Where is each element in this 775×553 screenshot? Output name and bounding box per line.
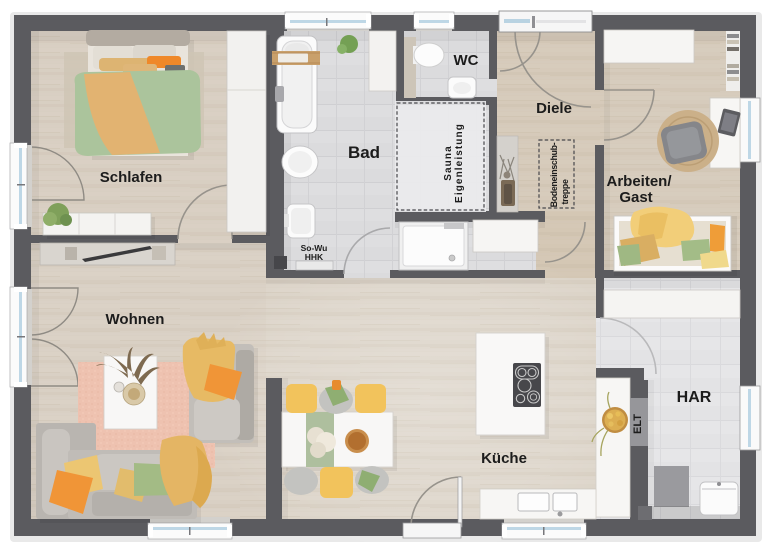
svg-text:treppe: treppe bbox=[560, 179, 570, 204]
svg-text:Bodeneinschub-: Bodeneinschub- bbox=[549, 142, 559, 207]
svg-text:Arbeiten/: Arbeiten/ bbox=[606, 173, 672, 190]
svg-text:Schlafen: Schlafen bbox=[100, 169, 163, 186]
svg-text:HHK: HHK bbox=[305, 252, 324, 262]
svg-text:Diele: Diele bbox=[536, 100, 572, 117]
svg-text:Küche: Küche bbox=[481, 450, 527, 467]
svg-text:WC: WC bbox=[454, 52, 479, 69]
svg-text:HAR: HAR bbox=[677, 389, 712, 406]
svg-text:Wohnen: Wohnen bbox=[106, 311, 165, 328]
svg-text:Gast: Gast bbox=[619, 189, 652, 206]
svg-text:ELT: ELT bbox=[632, 414, 644, 434]
svg-text:Sauna: Sauna bbox=[443, 145, 454, 181]
svg-text:Eigenleistung: Eigenleistung bbox=[454, 123, 465, 203]
svg-text:Bad: Bad bbox=[348, 143, 380, 162]
